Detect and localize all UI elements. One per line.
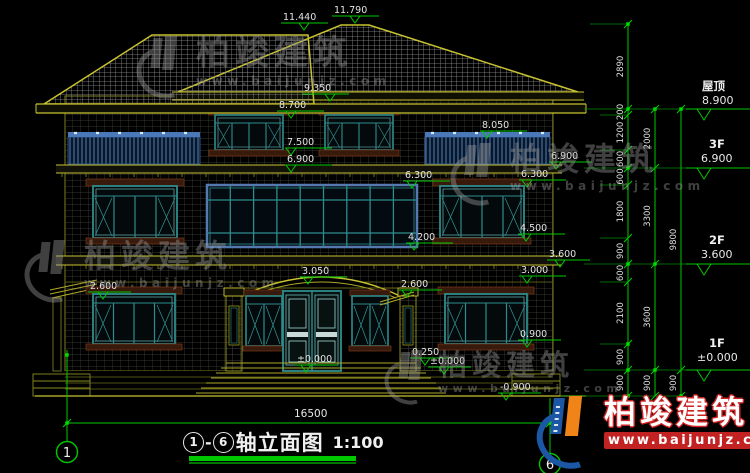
- level-roof: 屋顶 8.900: [686, 79, 750, 120]
- svg-text:1800: 1800: [616, 201, 626, 223]
- svg-text:0.900: 0.900: [520, 329, 547, 340]
- svg-text:2100: 2100: [616, 302, 626, 324]
- porch-pillar-right: [398, 288, 418, 371]
- axis-bubble-1: 1: [57, 442, 78, 463]
- dim-chain-outer: 9800 900: [669, 105, 685, 400]
- svg-text:6: 6: [546, 458, 554, 473]
- svg-text:11.440: 11.440: [283, 12, 316, 23]
- title-underline: [189, 456, 356, 461]
- svg-text:-0.900: -0.900: [500, 382, 531, 393]
- level-2f: 2F 3.600: [686, 233, 750, 275]
- window-1f-right: [438, 287, 534, 350]
- svg-text:600: 600: [616, 168, 626, 184]
- svg-text:3.600: 3.600: [701, 248, 733, 261]
- window-3f-left: [209, 109, 289, 156]
- svg-text:900: 900: [669, 375, 679, 391]
- svg-text:8.900: 8.900: [702, 94, 734, 107]
- svg-text:±0.000: ±0.000: [697, 351, 738, 364]
- svg-text:6.900: 6.900: [701, 152, 733, 165]
- left-wing-roof: [44, 35, 314, 104]
- svg-text:900: 900: [616, 375, 626, 391]
- svg-text:1200: 1200: [616, 122, 626, 144]
- svg-text:3.600: 3.600: [549, 249, 576, 260]
- svg-text:7.500: 7.500: [287, 137, 314, 148]
- svg-text:2000: 2000: [643, 128, 653, 150]
- dim-chain-middle: 2000 3300 3600 900: [643, 105, 659, 400]
- svg-text:3.000: 3.000: [521, 265, 548, 276]
- svg-text:2890: 2890: [616, 56, 626, 78]
- svg-text:4.200: 4.200: [408, 232, 435, 243]
- window-2f-right: [433, 179, 531, 244]
- svg-text:6.900: 6.900: [551, 151, 578, 162]
- svg-text:8.700: 8.700: [279, 100, 306, 111]
- svg-text:3600: 3600: [643, 306, 653, 328]
- elevation-canvas: 11.440 11.790 9.350 8.700 7.500 6.900 8.…: [0, 0, 750, 473]
- building-elevation: [33, 25, 586, 396]
- svg-text:6.900: 6.900: [287, 154, 314, 165]
- porch-pillar-left: [224, 288, 244, 371]
- svg-text:16500: 16500: [294, 408, 327, 420]
- svg-text:600: 600: [616, 151, 626, 167]
- svg-text:屋顶: 屋顶: [702, 79, 725, 93]
- main-eave-band: [36, 104, 586, 113]
- svg-text:900: 900: [616, 243, 626, 259]
- svg-text:9.350: 9.350: [304, 83, 331, 94]
- svg-text:6.300: 6.300: [405, 170, 432, 181]
- svg-text:200: 200: [616, 104, 626, 120]
- level-3f: 3F 6.900: [686, 137, 750, 179]
- title-underline-thin: [189, 462, 356, 464]
- svg-text:±0.000: ±0.000: [430, 356, 465, 367]
- svg-text:8.050: 8.050: [482, 120, 509, 131]
- svg-text:4.500: 4.500: [520, 223, 547, 234]
- svg-text:3300: 3300: [643, 205, 653, 227]
- svg-text:2F: 2F: [709, 233, 725, 247]
- svg-text:900: 900: [616, 349, 626, 365]
- svg-text:2.600: 2.600: [90, 281, 117, 292]
- level-1f: 1F ±0.000: [686, 336, 750, 381]
- porch-window-left: [243, 290, 285, 351]
- svg-text:3.050: 3.050: [302, 266, 329, 277]
- window-2f-left: [86, 179, 184, 244]
- svg-text:1: 1: [63, 446, 71, 461]
- svg-text:11.790: 11.790: [334, 5, 367, 16]
- window-3f-right: [319, 109, 399, 156]
- porch-post-far-left: [53, 298, 61, 371]
- svg-text:2.600: 2.600: [401, 279, 428, 290]
- svg-text:3F: 3F: [709, 137, 725, 151]
- axis-bubble-6: 6: [540, 454, 561, 473]
- svg-text:9800: 9800: [669, 229, 679, 251]
- window-2f-center-band: [207, 185, 417, 247]
- svg-text:600: 600: [616, 265, 626, 281]
- cad-elevation-drawing: 11.440 11.790 9.350 8.700 7.500 6.900 8.…: [0, 0, 750, 473]
- balcony-railing-left: [68, 132, 200, 164]
- porch-window-right: [349, 290, 391, 351]
- entrance-steps: [196, 363, 446, 393]
- svg-text:6.300: 6.300: [521, 169, 548, 180]
- door-lock-rail: [287, 332, 308, 337]
- window-1f-left: [86, 287, 182, 350]
- svg-text:±0.000: ±0.000: [297, 354, 332, 365]
- svg-text:1F: 1F: [709, 336, 725, 350]
- svg-text:900: 900: [643, 375, 653, 391]
